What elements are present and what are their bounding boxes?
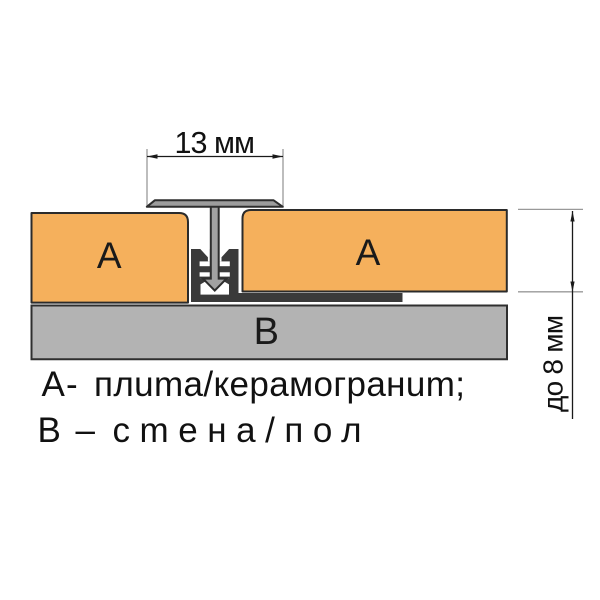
- svg-text:В: В: [254, 311, 279, 353]
- svg-text:А-плumа/керамогранum;: А-плumа/керамогранum;: [42, 365, 466, 404]
- svg-text:А: А: [356, 232, 381, 273]
- svg-text:13 мм: 13 мм: [175, 126, 256, 160]
- svg-text:А: А: [97, 235, 122, 276]
- svg-text:до 8 мм: до 8 мм: [538, 315, 569, 412]
